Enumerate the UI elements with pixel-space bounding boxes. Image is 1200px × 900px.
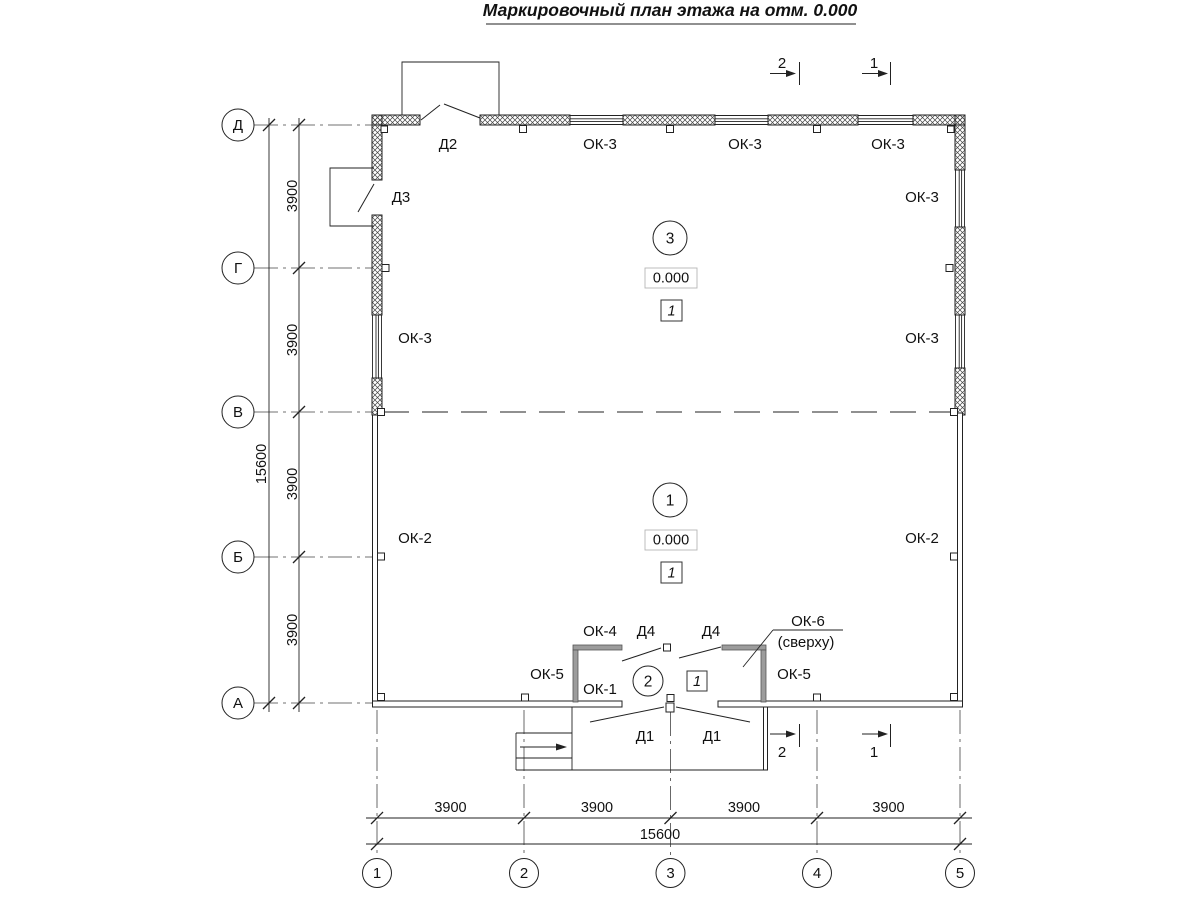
room-2-number: 2 — [644, 674, 653, 691]
room-1-elevation: 0.000 — [653, 533, 689, 549]
entrance-post — [666, 703, 674, 712]
bottom-dimensions: 3900 3900 3900 3900 15600 — [366, 800, 972, 850]
window-mark-ok6-note: (сверху) — [778, 634, 835, 651]
door-mark-d1-left: Д1 — [636, 728, 655, 745]
room-2-floor-type: 1 — [693, 674, 701, 690]
window-mark-ok3-left: ОК-3 — [398, 330, 432, 347]
window-mark-ok3-top-1: ОК-3 — [583, 136, 617, 153]
section-2-label-bottom: 2 — [778, 744, 786, 761]
right-window-ok3-lower — [956, 315, 965, 368]
room-2-marks: 2 1 — [633, 666, 707, 696]
section-1-label-bottom: 1 — [870, 744, 878, 761]
room-1-marks: 1 0.000 1 — [645, 483, 697, 583]
row-axis-lines — [254, 125, 372, 703]
entry-d3 — [330, 168, 374, 226]
door-leaf-d1-left — [590, 707, 664, 722]
left-dimensions: 15600 3900 3900 3900 3900 — [254, 118, 305, 712]
window-mark-ok3-right-lower: ОК-3 — [905, 330, 939, 347]
dim-bottom-seg-2: 3900 — [581, 800, 613, 816]
dim-left-seg-1: 3900 — [285, 180, 301, 212]
room-3-number: 3 — [666, 231, 675, 248]
room-3-marks: 3 0.000 1 — [645, 221, 697, 321]
door-leaf-d1-right — [676, 707, 750, 722]
dim-bottom-seg-1: 3900 — [434, 800, 466, 816]
dim-bottom-seg-3: 3900 — [728, 800, 760, 816]
top-window-1 — [570, 116, 623, 125]
dim-left-seg-4: 3900 — [285, 614, 301, 646]
page-title: Маркировочный план этажа на отм. 0.000 — [483, 0, 858, 20]
vestibule-post — [664, 644, 671, 651]
section-2-label-top: 2 — [778, 55, 786, 72]
door-leaf-d3 — [358, 184, 374, 212]
window-mark-ok3-top-2: ОК-3 — [728, 136, 762, 153]
window-mark-ok5-left: ОК-5 — [530, 666, 564, 683]
axis-label-col-3: 3 — [666, 865, 674, 882]
axis-label-row-a: А — [233, 695, 243, 712]
door-mark-d4-right: Д4 — [702, 623, 721, 640]
section-marks-bottom: 2 1 — [770, 724, 891, 761]
column-marks — [378, 126, 958, 702]
window-mark-ok3-top-3: ОК-3 — [871, 136, 905, 153]
window-mark-ok5-right: ОК-5 — [777, 666, 811, 683]
dim-left-seg-2: 3900 — [285, 324, 301, 356]
axis-label-row-v: В — [233, 404, 243, 421]
door-mark-d4-left: Д4 — [637, 623, 656, 640]
door-leaf-d2-right — [444, 104, 480, 118]
top-wall — [372, 115, 965, 125]
window-mark-ok2-right: ОК-2 — [905, 530, 939, 547]
door-mark-d2: Д2 — [439, 136, 458, 153]
axis-label-col-1: 1 — [373, 865, 381, 882]
steps-direction-arrow — [556, 744, 567, 751]
room-1-floor-type: 1 — [667, 566, 675, 582]
section-1-label-top: 1 — [870, 55, 878, 72]
right-wall-thin — [958, 413, 963, 703]
entrance-steps — [516, 733, 572, 770]
window-mark-ok6: ОК-6 — [791, 613, 825, 630]
floor-plan-drawing: Маркировочный план этажа на отм. 0.000 1… — [0, 0, 1200, 900]
section-marks-top: 2 1 — [770, 55, 891, 85]
axis-label-col-2: 2 — [520, 865, 528, 882]
axis-label-row-d: Д — [233, 117, 243, 134]
dim-left-total: 15600 — [254, 444, 270, 484]
door-mark-d1-right: Д1 — [703, 728, 722, 745]
dim-bottom-total: 15600 — [640, 827, 680, 843]
right-window-ok3-upper — [956, 170, 965, 227]
room-3-floor-type: 1 — [667, 304, 675, 320]
window-mark-ok3-right-upper: ОК-3 — [905, 189, 939, 206]
left-window-ok3 — [373, 315, 382, 378]
door-leaf-d4-left — [622, 648, 661, 661]
col-axis-bubbles: 1 2 3 4 5 — [363, 859, 975, 888]
room-1-number: 1 — [666, 493, 675, 510]
top-window-2 — [715, 116, 768, 125]
window-mark-ok1: ОК-1 — [583, 681, 617, 698]
dim-left-seg-3: 3900 — [285, 468, 301, 500]
door-leaf-d2-left — [421, 105, 440, 120]
axis-label-col-4: 4 — [813, 865, 821, 882]
axis-label-row-g: Г — [234, 260, 242, 277]
drawing-sheet: Маркировочный план этажа на отм. 0.000 1… — [0, 0, 1200, 900]
door-mark-d3: Д3 — [392, 189, 411, 206]
axis-label-row-b: Б — [233, 549, 243, 566]
window-mark-ok4: ОК-4 — [583, 623, 617, 640]
row-axis-bubbles: Д Г В Б А — [222, 109, 254, 719]
ok6-callout: ОК-6 (сверху) — [743, 613, 843, 667]
door-leaf-d4-right — [679, 647, 721, 658]
window-mark-ok2-left: ОК-2 — [398, 530, 432, 547]
axis-label-col-5: 5 — [956, 865, 964, 882]
top-window-3 — [858, 116, 913, 125]
left-wall-thin — [373, 415, 378, 703]
room-3-elevation: 0.000 — [653, 271, 689, 287]
dim-bottom-seg-4: 3900 — [872, 800, 904, 816]
entry-d2 — [402, 62, 499, 120]
